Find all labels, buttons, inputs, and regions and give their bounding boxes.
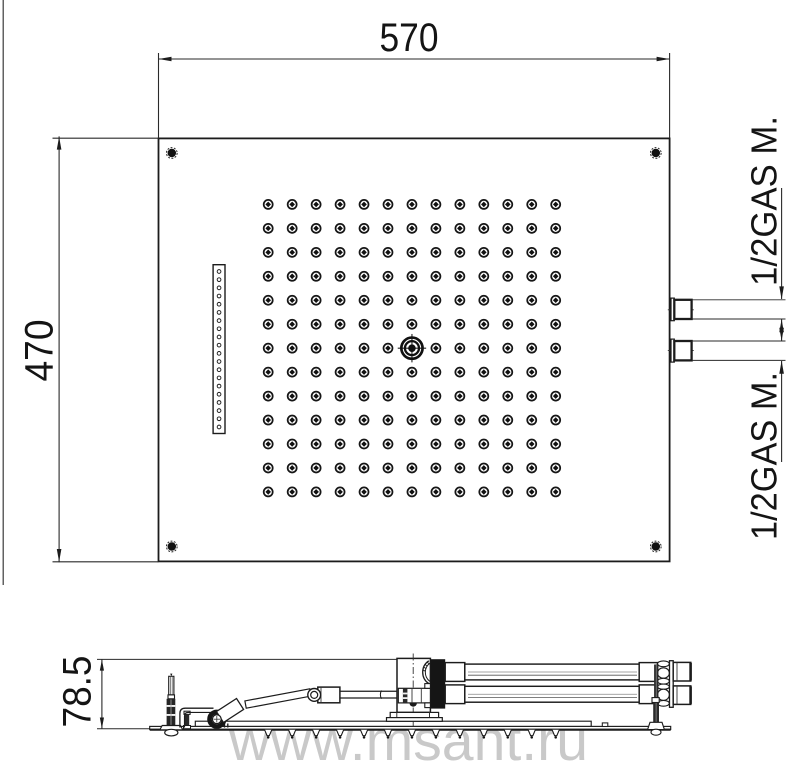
svg-text:470: 470: [18, 320, 62, 382]
svg-text:1/2GAS M.: 1/2GAS M.: [744, 372, 785, 540]
svg-text:570: 570: [380, 16, 439, 60]
svg-text:78.5: 78.5: [56, 656, 100, 728]
svg-text:1/2GAS M.: 1/2GAS M.: [744, 116, 785, 286]
